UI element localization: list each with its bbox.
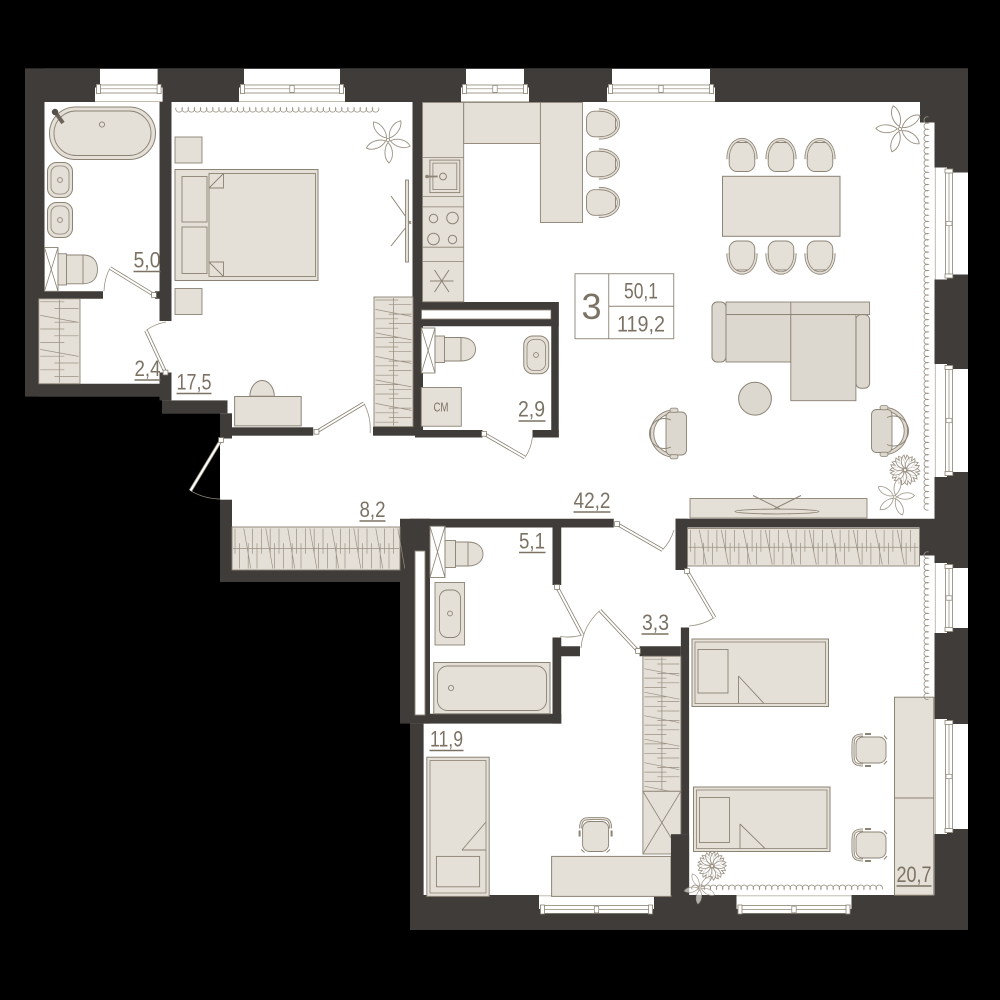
svg-text:42,2: 42,2 [574,488,611,513]
svg-text:119,2: 119,2 [617,312,665,337]
svg-text:2,9: 2,9 [518,397,545,422]
svg-text:17,5: 17,5 [177,370,212,395]
svg-text:СМ: СМ [434,400,449,415]
svg-text:5,1: 5,1 [519,529,545,554]
svg-text:3: 3 [581,286,601,327]
svg-text:20,7: 20,7 [897,862,932,887]
svg-text:11,9: 11,9 [430,727,463,752]
svg-text:5,0: 5,0 [134,248,161,273]
svg-text:50,1: 50,1 [624,279,658,304]
svg-text:8,2: 8,2 [360,497,386,522]
svg-text:3,3: 3,3 [642,610,669,635]
svg-text:2,4: 2,4 [135,356,161,381]
